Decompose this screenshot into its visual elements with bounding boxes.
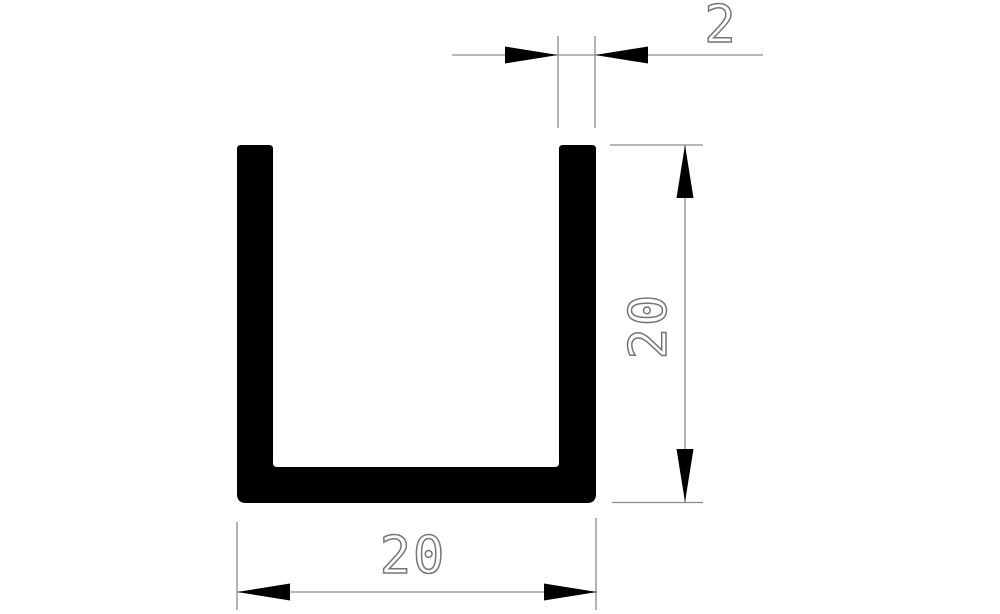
thickness-label: 2	[704, 0, 737, 55]
drawing-canvas: 2 20 20	[0, 0, 1000, 614]
arrow-down-icon	[677, 449, 694, 502]
arrow-left-icon	[595, 47, 648, 64]
arrow-right-icon	[544, 584, 597, 601]
technical-drawing: 2 20 20	[0, 0, 1000, 614]
height-label: 20	[619, 293, 679, 360]
thickness-dimension: 2	[452, 0, 763, 128]
u-channel-profile	[237, 145, 596, 503]
width-dimension: 20	[237, 518, 597, 610]
arrow-right-icon	[505, 47, 558, 64]
arrow-up-icon	[677, 145, 694, 198]
width-label: 20	[380, 526, 447, 586]
arrow-left-icon	[237, 584, 290, 601]
height-dimension: 20	[610, 145, 703, 503]
